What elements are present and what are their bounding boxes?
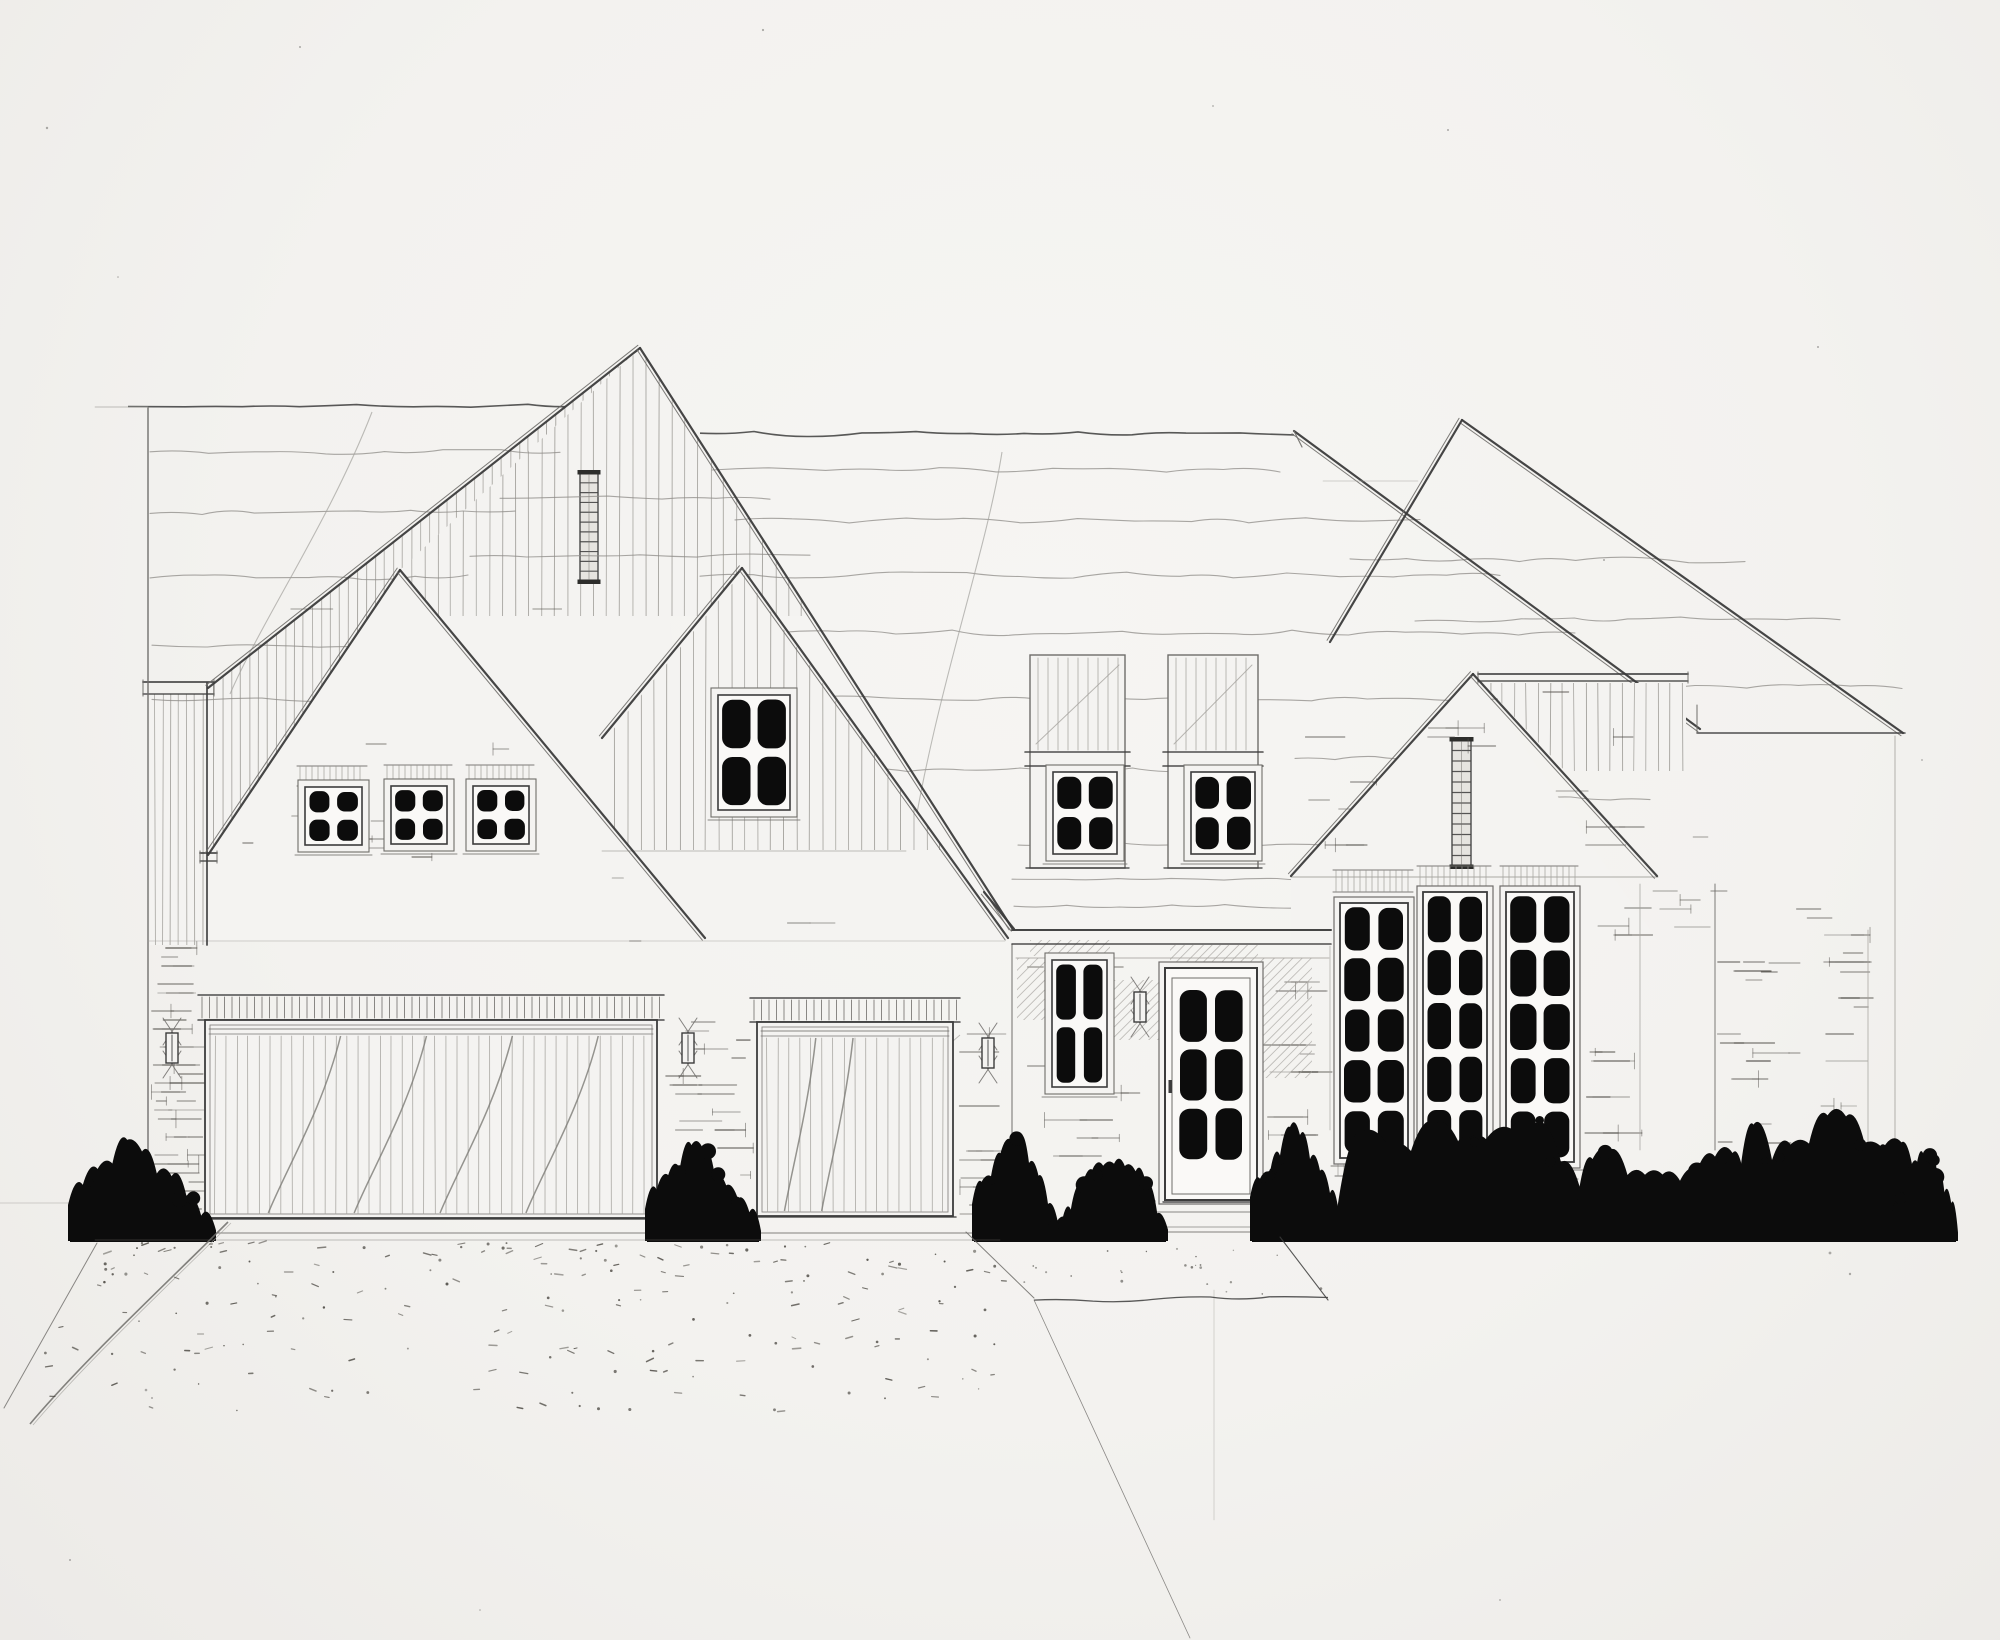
- window-pane: [1056, 965, 1076, 1020]
- window-pane: [505, 819, 525, 840]
- window-pane: [337, 820, 358, 841]
- window-4-pane: [295, 780, 372, 855]
- window-pane: [1083, 965, 1102, 1020]
- sketch-sheet: [0, 0, 2000, 1640]
- brick-hatching: [1585, 908, 1652, 1141]
- window-4-pane: [463, 779, 539, 854]
- shrub: [972, 1131, 1067, 1242]
- left-corner-board-strip: [150, 690, 205, 949]
- house-front-elevation-drawing: [0, 0, 2000, 1640]
- gable-louver-vent: [1450, 737, 1474, 869]
- window-pane: [309, 820, 329, 841]
- garage-door: [750, 998, 960, 1217]
- shrub: [1060, 1159, 1168, 1242]
- window-4-pane: [1042, 953, 1117, 1097]
- window-pane: [1057, 817, 1081, 850]
- window-pane: [1345, 1010, 1370, 1052]
- gable-louver-vent: [578, 470, 601, 584]
- structural-edges: [0, 407, 1905, 1520]
- window-pane: [477, 790, 497, 812]
- window-pane: [423, 819, 443, 840]
- window-pane: [423, 790, 443, 811]
- window-4-pane: [708, 688, 800, 820]
- window-pane: [1544, 1004, 1570, 1050]
- window-pane: [1344, 1060, 1370, 1102]
- window-pane: [1216, 1108, 1243, 1160]
- brick-hatching: [1653, 837, 1870, 1143]
- shrub: [645, 1141, 761, 1242]
- window-pane: [1510, 1004, 1536, 1050]
- window-pane: [722, 700, 750, 748]
- shrub: [1575, 1145, 1750, 1242]
- window-pane: [1378, 958, 1404, 1002]
- window-pane: [1378, 1060, 1404, 1103]
- left-roof-plane: [128, 404, 1294, 436]
- sketch-guide-curve: [908, 452, 1002, 868]
- window-pane: [1057, 777, 1081, 809]
- window-pane: [1428, 896, 1451, 942]
- window-pane: [1196, 817, 1219, 849]
- window-pane: [1180, 990, 1207, 1042]
- window-pane: [758, 700, 786, 749]
- window-pane: [1215, 1049, 1243, 1100]
- window-pane: [1227, 817, 1251, 850]
- window-pane: [1089, 777, 1113, 809]
- window-pane: [1344, 958, 1370, 1001]
- window-pane: [1180, 1049, 1207, 1100]
- front-walkway: [966, 1232, 1328, 1302]
- window-pane: [1510, 950, 1536, 997]
- driveway: [4, 1222, 1322, 1638]
- window-pane: [1215, 990, 1243, 1042]
- window-pane: [1428, 950, 1451, 995]
- window-4-pane: [1181, 765, 1265, 864]
- window-pane: [1544, 896, 1569, 942]
- wall-sconce-light: [679, 1018, 697, 1078]
- window-pane: [758, 757, 786, 806]
- front-door: [1159, 962, 1263, 1204]
- window-pane: [1227, 776, 1251, 809]
- window-pane: [1459, 950, 1482, 995]
- window-pane: [1179, 1109, 1207, 1159]
- window-pane: [1195, 777, 1219, 809]
- window-pane: [310, 791, 330, 812]
- window-pane: [1378, 908, 1403, 950]
- window-pane: [1057, 1027, 1076, 1082]
- window-pane: [1459, 1003, 1482, 1048]
- wall-sconce-light: [163, 1018, 181, 1078]
- tall-window-10-pane: [1331, 897, 1417, 1166]
- window-4-pane: [1043, 765, 1127, 864]
- shrub: [68, 1137, 216, 1242]
- window-pane: [1460, 1057, 1483, 1103]
- window-pane: [1544, 951, 1570, 997]
- window-pane: [395, 819, 415, 840]
- window-pane: [1428, 1003, 1452, 1049]
- brick-hatching: [1821, 927, 1873, 1113]
- garage-door: [198, 995, 664, 1219]
- wall-sconce-light: [979, 1023, 997, 1083]
- brick-hatching: [1718, 962, 1775, 1142]
- window-pane: [722, 757, 750, 805]
- board-siding: [150, 690, 205, 949]
- window-pane: [395, 790, 415, 811]
- window-4-pane: [381, 779, 457, 854]
- window-pane: [1427, 1057, 1451, 1102]
- door-handle: [1169, 1080, 1173, 1093]
- window-pane: [1511, 1058, 1536, 1103]
- window-pane: [1510, 896, 1536, 943]
- window-pane: [1378, 1009, 1404, 1051]
- window-pane: [337, 792, 358, 812]
- window-pane: [477, 819, 497, 839]
- window-pane: [1345, 907, 1370, 950]
- window-pane: [1459, 897, 1482, 942]
- window-pane: [1544, 1058, 1570, 1103]
- window-pane: [1084, 1027, 1102, 1082]
- window-pane: [505, 791, 524, 812]
- window-pane: [1089, 817, 1112, 849]
